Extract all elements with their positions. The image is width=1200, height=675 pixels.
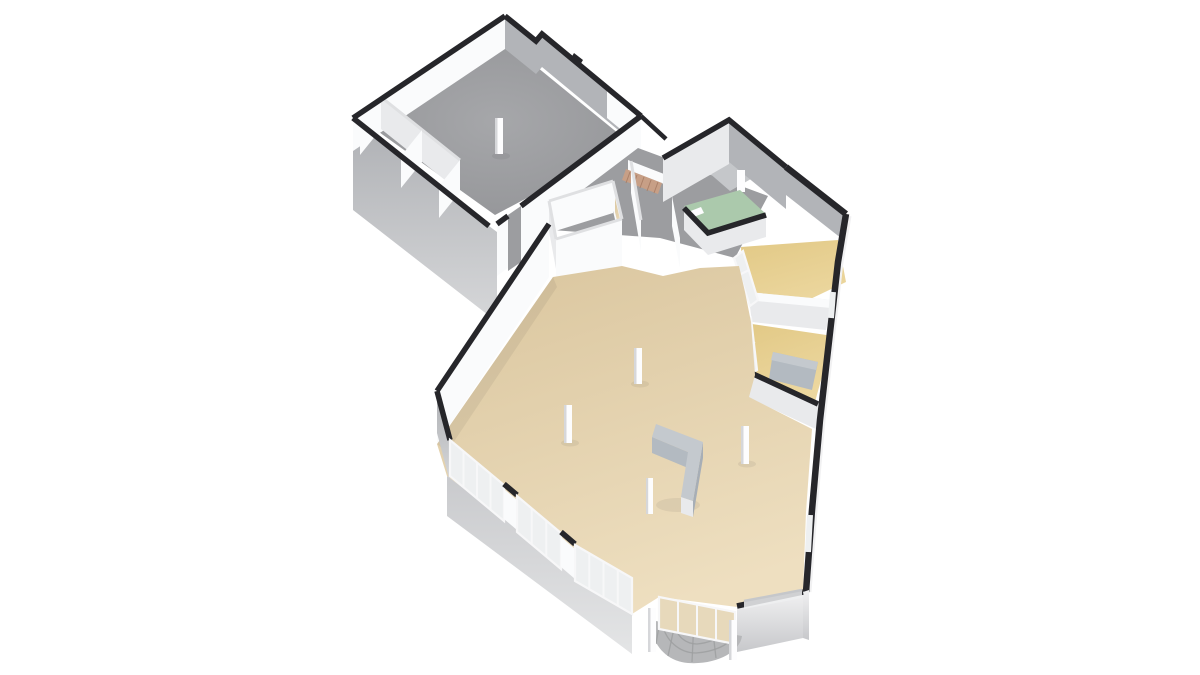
hall-column-1-shade <box>564 405 567 443</box>
hall-column-3-shade <box>741 426 744 464</box>
hall-column-2-shade <box>634 348 637 384</box>
cluster-northeast-cap <box>641 116 666 139</box>
passage-floor-through-door <box>508 206 521 271</box>
east-exterior-sliver <box>803 590 809 640</box>
floorplan-3d-render <box>0 0 1200 675</box>
vestibule-door <box>737 170 745 192</box>
counter-column-shade <box>646 478 648 514</box>
floorplan-canvas <box>0 0 1200 675</box>
porch-post-right-shade <box>729 620 732 660</box>
porch-post-left-shade <box>648 608 651 652</box>
gray-hall-column-shade <box>495 118 498 154</box>
